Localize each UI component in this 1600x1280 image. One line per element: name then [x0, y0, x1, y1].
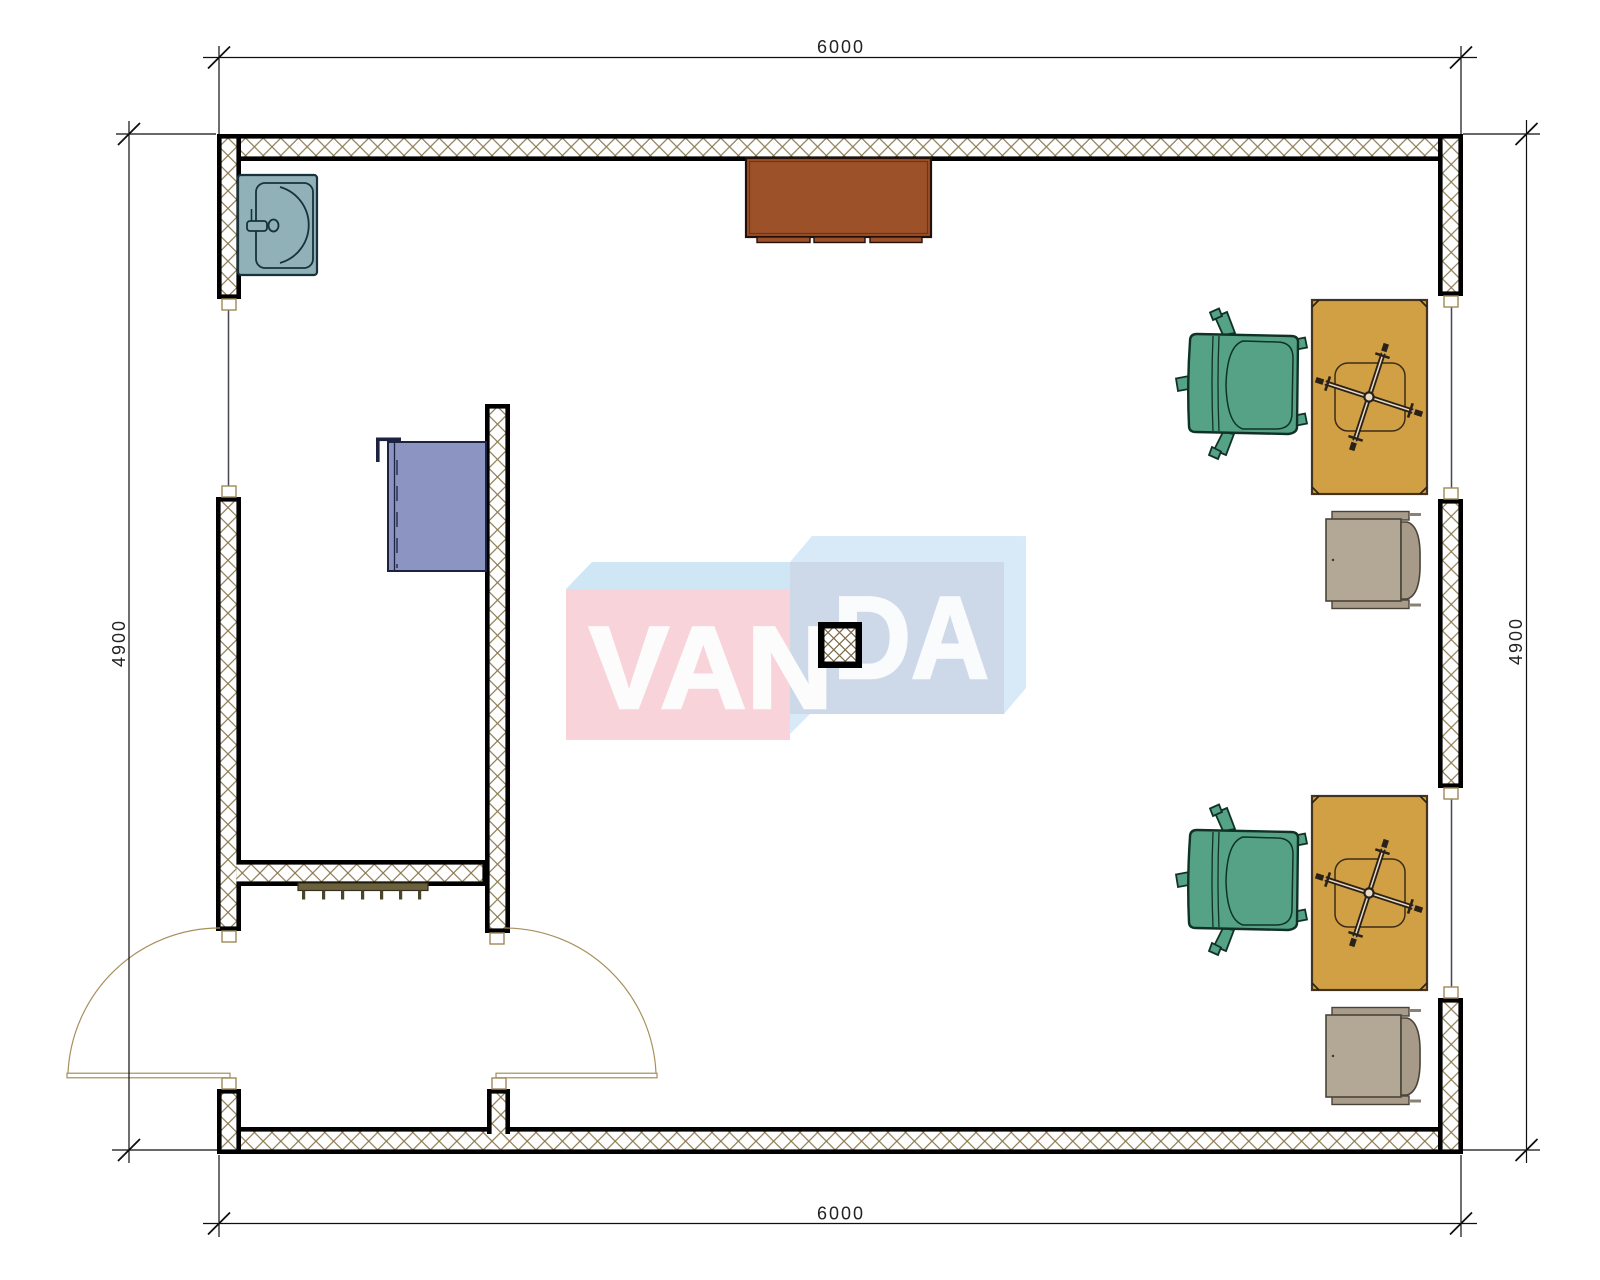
svg-text:6000: 6000 [817, 37, 865, 57]
svg-text:VAN: VAN [589, 602, 833, 733]
svg-text:4900: 4900 [109, 619, 129, 667]
svg-text:4900: 4900 [1506, 617, 1526, 665]
svg-text:6000: 6000 [817, 1204, 865, 1224]
